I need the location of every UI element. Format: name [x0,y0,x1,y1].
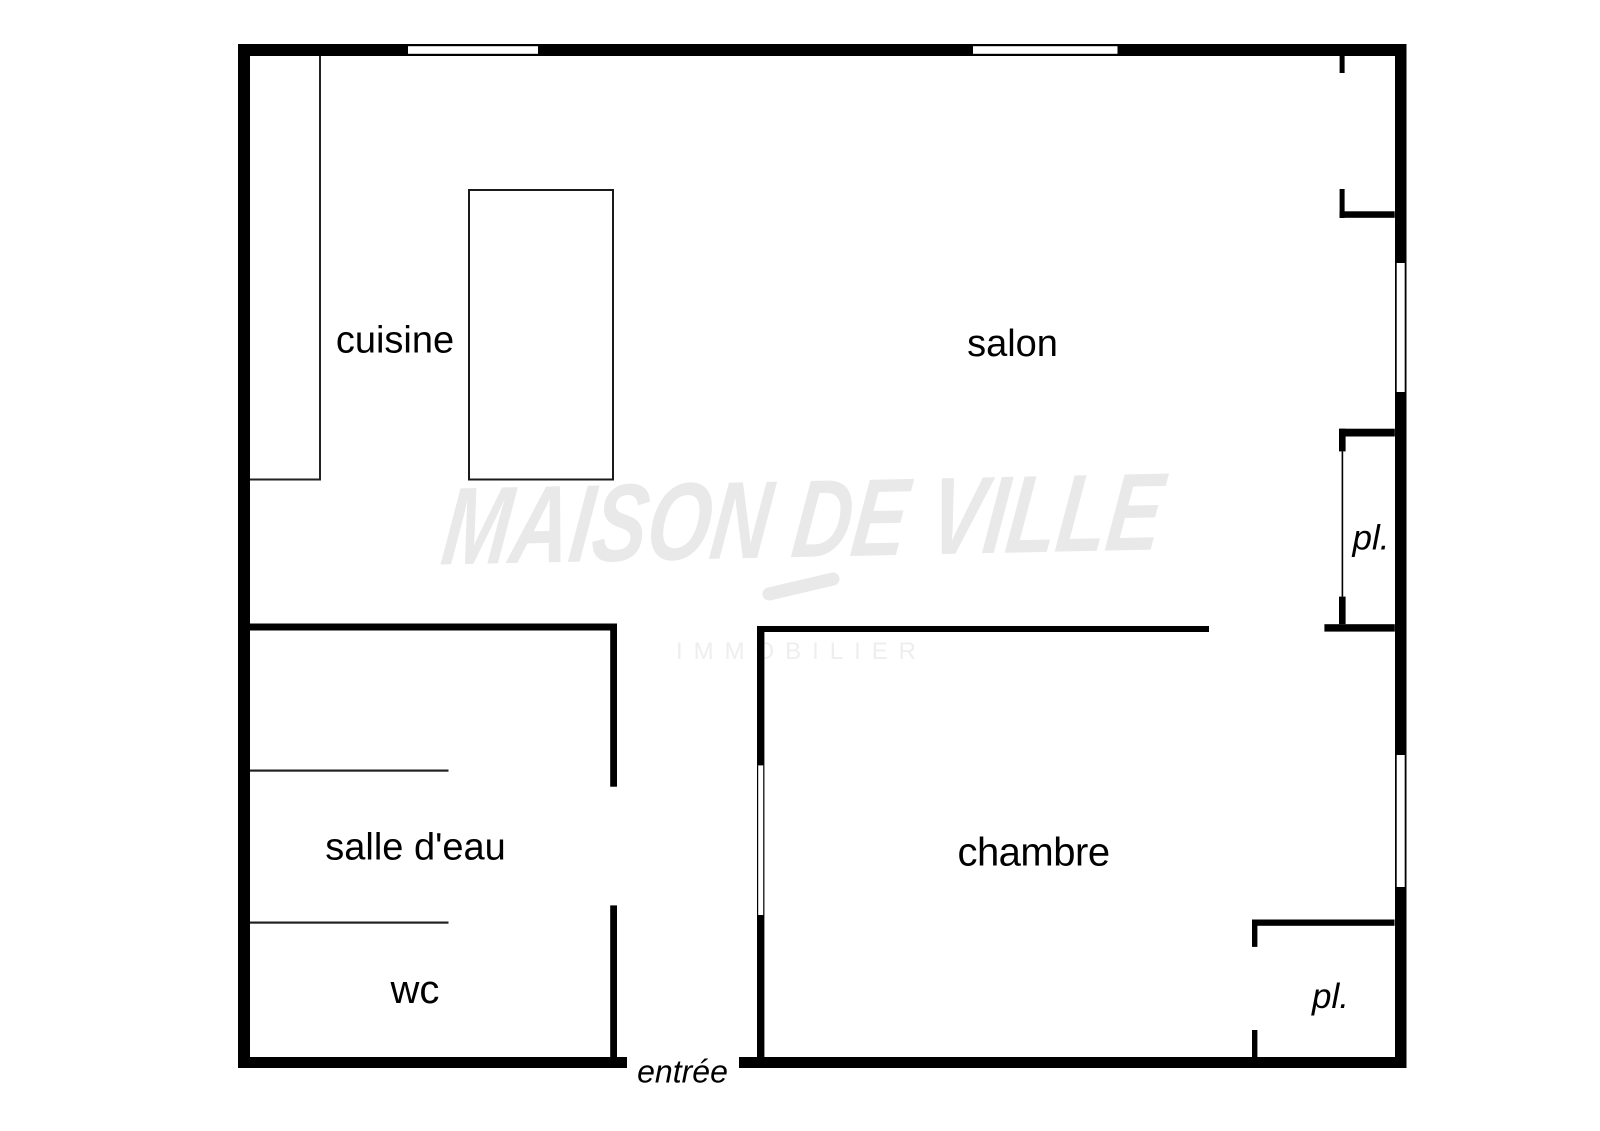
svg-text:salle d'eau: salle d'eau [325,827,506,869]
svg-text:chambre: chambre [957,831,1109,875]
svg-text:wc: wc [390,968,440,1012]
svg-text:pl.: pl. [1311,977,1349,1016]
svg-text:cuisine: cuisine [336,320,454,362]
svg-text:pl.: pl. [1352,519,1390,558]
svg-text:IMMOBILIER: IMMOBILIER [676,638,928,665]
svg-text:entrée: entrée [637,1054,728,1090]
svg-text:salon: salon [967,323,1058,365]
